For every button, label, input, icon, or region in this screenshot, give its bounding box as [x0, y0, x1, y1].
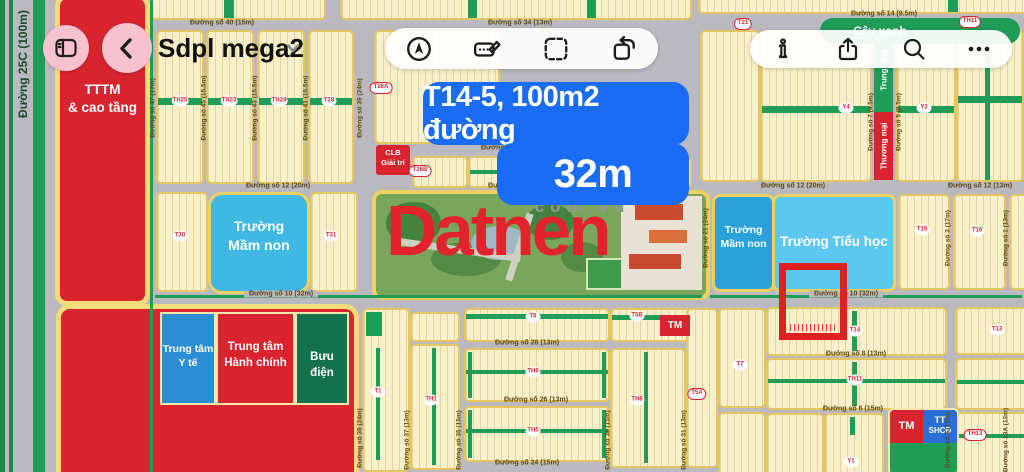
select-button[interactable]: [542, 35, 570, 63]
plot-label: TH23: [221, 96, 238, 107]
plot-label: T26B: [409, 165, 432, 177]
street-label: Đường số 33 (15m): [605, 410, 612, 470]
back-chevron-icon: [112, 33, 142, 63]
street-label: Đường số 39 (24m): [357, 408, 364, 468]
navigate-button[interactable]: [405, 35, 433, 63]
search-icon: [901, 36, 927, 62]
post-office-block[interactable]: Bưu điện: [295, 312, 349, 405]
markup-icon: [473, 35, 501, 63]
markup-button[interactable]: [473, 35, 501, 63]
more-ellipsis-icon: [966, 36, 992, 62]
main-road-label: Đường 25C (100m): [16, 10, 30, 118]
street-label: Đường số 12 (20m): [246, 183, 310, 190]
kindergarten-right-label: Trường Mầm non: [715, 223, 772, 251]
plot-info-banner-line1: T14-5, 100m2 đường: [423, 82, 689, 145]
plot-label: T26A: [370, 82, 393, 94]
plot-label: T5B: [630, 311, 645, 322]
tm-badge-label: TM: [660, 319, 690, 333]
street-label: Đường số 10 (32m): [244, 291, 318, 298]
share-button[interactable]: [835, 36, 861, 62]
plot-block[interactable]: [1009, 194, 1024, 290]
tm-badge[interactable]: TM: [660, 315, 690, 336]
plot-label: Y1: [844, 457, 859, 468]
primary-school-label: Trường Tiểu học: [775, 233, 893, 251]
street-label: Đường số 1 (13m): [1003, 210, 1010, 266]
street-label: Đường số 13A (13m): [1003, 408, 1010, 472]
plot-block[interactable]: [718, 412, 766, 472]
plot-block[interactable]: [340, 0, 692, 20]
main-road-median: [33, 0, 45, 472]
street-label: Đường số 28 (13m): [495, 340, 559, 347]
plot-label: T1: [371, 387, 386, 398]
selected-plot-highlight[interactable]: [779, 263, 847, 340]
medical-center-label: Trung tâm Y tế: [162, 342, 214, 370]
admin-center-label: Trung tâm Hành chính: [218, 340, 293, 371]
sidebar-button[interactable]: [43, 25, 89, 71]
street-median: [155, 295, 702, 298]
street-label: Đường số 24 (15m): [495, 460, 559, 467]
street-label: Đường số 21 (24m): [703, 208, 710, 268]
street-label: Đường số 14 (9.5m): [851, 11, 917, 18]
plot-label: T16: [970, 226, 985, 237]
plot-block[interactable]: [410, 312, 460, 342]
clb-label: CLB Giải trí: [376, 148, 410, 168]
street-label: Đường số 6 (15m): [823, 406, 883, 413]
street-label: Đường số 12 (13m): [948, 183, 1012, 190]
info-button[interactable]: i: [770, 36, 796, 62]
street-label: Đường số 45 (15.5m): [201, 76, 208, 141]
street-label: Đường số 34 (13m): [488, 20, 552, 27]
plot-label: TH25: [172, 96, 189, 107]
plot-block[interactable]: [953, 194, 1006, 290]
street-label: Đường số 41 (15.5m): [303, 76, 310, 141]
tt-label: TT: [923, 414, 957, 426]
more-button[interactable]: [966, 36, 992, 62]
roof: [649, 230, 687, 243]
plot-label: TH13: [964, 429, 987, 441]
street-label: Đường số 39 (24m): [357, 78, 364, 138]
street-label: Đường số 31 (13m): [681, 410, 688, 470]
plot-label: TH5: [526, 426, 541, 437]
select-marquee-icon: [542, 35, 570, 63]
main-road-stripe: [9, 0, 13, 472]
shcd-label: SHCĐ: [923, 426, 957, 437]
markup-toolbar: [385, 28, 658, 69]
clb-block[interactable]: CLB Giải trí: [376, 145, 410, 175]
plot-block[interactable]: [955, 358, 1024, 410]
street-label: Đường số 47 (17m): [150, 78, 157, 138]
thuongmai-label: Thương mại: [880, 122, 889, 169]
plot-label: T21: [734, 18, 752, 30]
plot-label: TH8: [630, 395, 645, 406]
map-viewer-app[interactable]: Đường 25C (100m) TTTM & cao tầng Cây xan…: [0, 0, 1024, 472]
street-label: Đường số 3 (17m): [945, 412, 952, 468]
chevron-down-icon: [284, 40, 302, 56]
admin-center-block[interactable]: Trung tâm Hành chính: [216, 312, 295, 405]
plot-label: TH6: [526, 367, 541, 378]
sidebar-icon: [53, 35, 79, 61]
plot-label: T5A: [687, 388, 706, 400]
plot-label: T15: [915, 225, 930, 236]
share-icon: [835, 36, 861, 62]
back-button[interactable]: [102, 23, 152, 73]
search-button[interactable]: [901, 36, 927, 62]
tm-sub-block: TM: [890, 410, 923, 443]
shcd-sub-block: TT SHCĐ: [923, 410, 957, 443]
svg-text:i: i: [779, 36, 786, 62]
plot-block[interactable]: [955, 412, 1024, 472]
street-label: Đường số 43 (15.5m): [252, 76, 259, 141]
title-dropdown-button[interactable]: [284, 40, 302, 56]
info-icon: i: [770, 36, 796, 62]
rotate-icon: [610, 35, 638, 63]
kindergarten-left-label: Trường Mầm non: [211, 217, 307, 255]
plot-block[interactable]: [310, 192, 358, 292]
plot-label: Y4: [839, 103, 854, 114]
street-label: Đường số 26 (13m): [504, 397, 568, 404]
plot-info-banner-line2: 32m: [497, 143, 689, 205]
plot-label: TH1: [424, 395, 439, 406]
civic-center-block[interactable]: Trung tâm Y tế Trung tâm Hành chính Bưu …: [56, 304, 359, 472]
kindergarten-right-block[interactable]: Trường Mầm non: [712, 194, 775, 292]
street-label: Đường số 35 (15m): [456, 410, 463, 470]
plot-block[interactable]: [610, 348, 686, 468]
plot-block[interactable]: [718, 308, 766, 408]
kindergarten-left-block[interactable]: Trường Mầm non: [208, 192, 310, 294]
plot-label: TH24: [271, 96, 288, 107]
street-label: Đường số 5 (9.5m): [896, 93, 903, 151]
document-title[interactable]: Sdpl mega2: [158, 33, 304, 64]
post-office-label: Bưu điện: [297, 350, 347, 381]
clubhouse-zone: [621, 196, 702, 290]
main-road-stripe: [0, 0, 5, 472]
action-toolbar: i: [750, 30, 1012, 68]
plot-label: T31: [324, 231, 339, 242]
plot-block[interactable]: [150, 0, 326, 20]
street-label: Đường số 3 (17m): [945, 210, 952, 266]
street-label: Đường số 12 (20m): [761, 183, 825, 190]
plot-label: T6: [526, 312, 541, 323]
plot-label: Y2: [917, 103, 932, 114]
navigate-icon: [405, 35, 433, 63]
plot-block[interactable]: [308, 30, 354, 184]
medical-center-block[interactable]: Trung tâm Y tế: [160, 312, 216, 405]
plot-label: T7: [733, 360, 748, 371]
roof: [635, 204, 683, 220]
roof: [629, 254, 681, 269]
plot-block[interactable]: [766, 413, 824, 472]
road-edge-line: [150, 0, 153, 472]
plot-block[interactable]: [156, 192, 208, 292]
plot-label: TH11: [959, 16, 981, 28]
tm-sub-label: TM: [890, 419, 923, 434]
highlight-plot-ticks: [790, 324, 836, 331]
plot-label: T14: [848, 326, 863, 337]
plot-label: T13: [990, 325, 1005, 336]
street-label: Đường số 37 (13m): [404, 410, 411, 470]
plot-label: T28: [322, 96, 337, 107]
street-label: Đường số 7 (9.5m): [868, 93, 875, 151]
plot-label: T30: [173, 231, 188, 242]
plot-block[interactable]: [898, 194, 950, 290]
rotate-button[interactable]: [610, 35, 638, 63]
plot-block[interactable]: [410, 344, 460, 470]
street-label: Đường số 8 (13m): [826, 351, 886, 358]
street-label: Đường số 40 (15m): [190, 20, 254, 27]
tttm-label: TTTM & cao tầng: [60, 81, 145, 117]
